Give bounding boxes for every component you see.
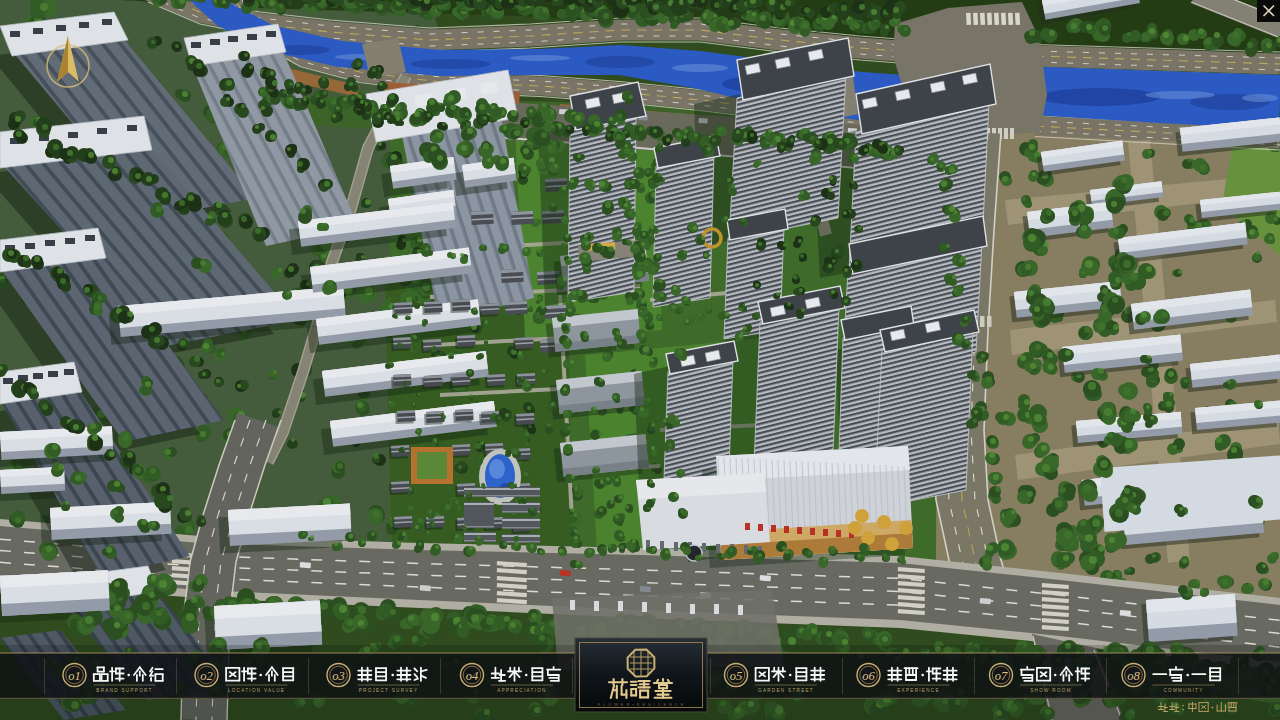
svg-text:COMMUNITY: COMMUNITY [1163, 688, 1203, 693]
svg-text:o2: o2 [200, 669, 213, 683]
svg-text:EXPERIENCE: EXPERIENCE [897, 688, 940, 693]
svg-text:o4: o4 [466, 669, 479, 683]
svg-text:o7: o7 [995, 669, 1008, 683]
svg-text:o1: o1 [68, 669, 81, 683]
svg-text:APPRECIATION: APPRECIATION [497, 688, 546, 693]
svg-text:o5: o5 [730, 669, 743, 683]
svg-text:PROJECT SURVEY: PROJECT SURVEY [359, 688, 419, 693]
svg-text:GARDEN STREET: GARDEN STREET [758, 688, 814, 693]
svg-text:o8: o8 [1127, 669, 1140, 683]
svg-text:BRAND SUPPORT: BRAND SUPPORT [96, 688, 152, 693]
svg-text:o6: o6 [862, 669, 875, 683]
svg-text:SHOW ROOM: SHOW ROOM [1030, 688, 1072, 693]
svg-text:F L O W E R • R E S I D E N C: F L O W E R • R E S I D E N C E [598, 703, 684, 707]
svg-text:LOCATION VALUE: LOCATION VALUE [228, 688, 285, 693]
svg-text:o3: o3 [332, 669, 345, 683]
